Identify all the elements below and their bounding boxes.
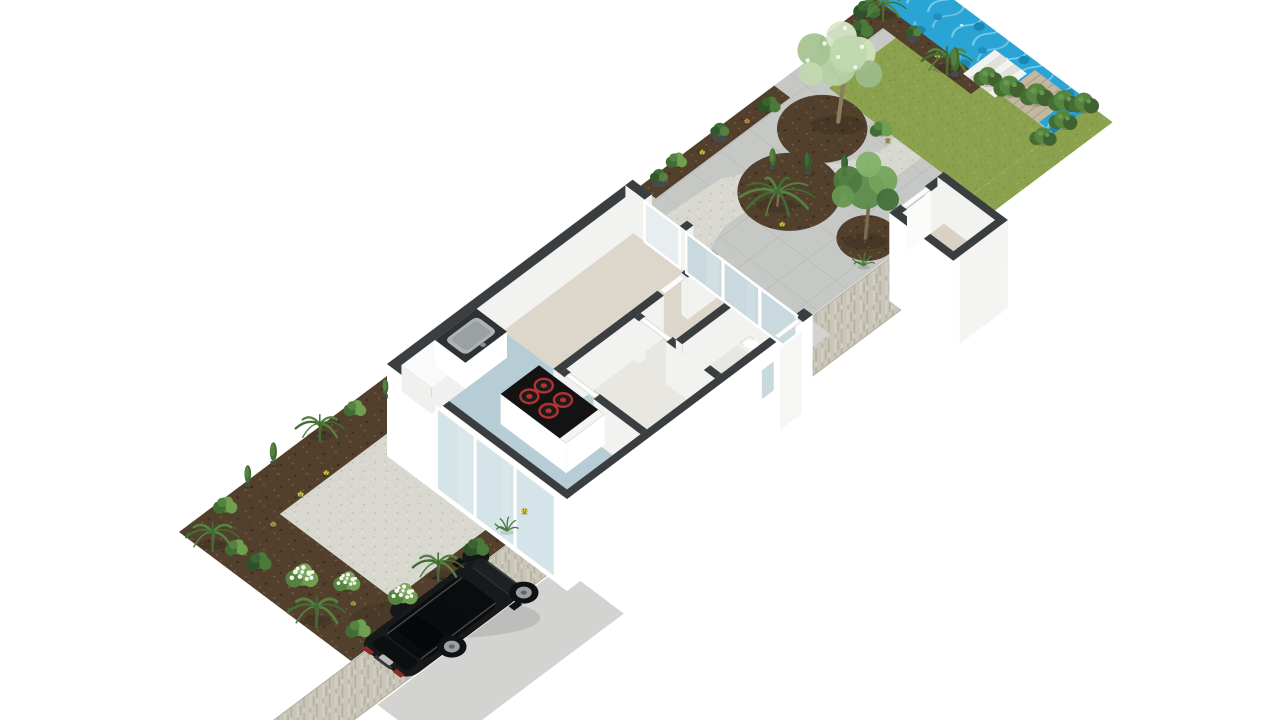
burner-center	[545, 408, 551, 413]
front-door	[779, 330, 803, 432]
sliding-glass-southwest-mullion	[513, 465, 516, 549]
floorplan-3d-render	[0, 0, 1280, 720]
car-hub	[521, 590, 527, 594]
scene-svg	[0, 0, 1280, 720]
front-door-glass	[779, 330, 803, 432]
wall-wc-a-face-west	[676, 339, 682, 386]
kitchen-faucet	[480, 343, 486, 347]
car-hub	[449, 644, 455, 648]
sliding-glass-northeast-mullion	[721, 259, 724, 301]
sliding-glass-northeast-mullion	[758, 287, 761, 329]
wall-bath-c-face-west	[634, 318, 639, 364]
sliding-glass-southwest-mullion	[473, 435, 476, 519]
burner-center	[526, 394, 532, 399]
sliding-glass-northeast-reflection	[747, 280, 755, 322]
house-wall-se-b-face-south	[803, 315, 813, 414]
toilet-bowl	[743, 340, 758, 349]
shed-wall-sw-face-south	[953, 256, 959, 349]
burner-center	[560, 398, 566, 403]
sliding-glass-southwest-reflection	[458, 425, 472, 514]
burner-center	[541, 383, 547, 388]
house-wall-sw-face-south	[567, 494, 573, 591]
